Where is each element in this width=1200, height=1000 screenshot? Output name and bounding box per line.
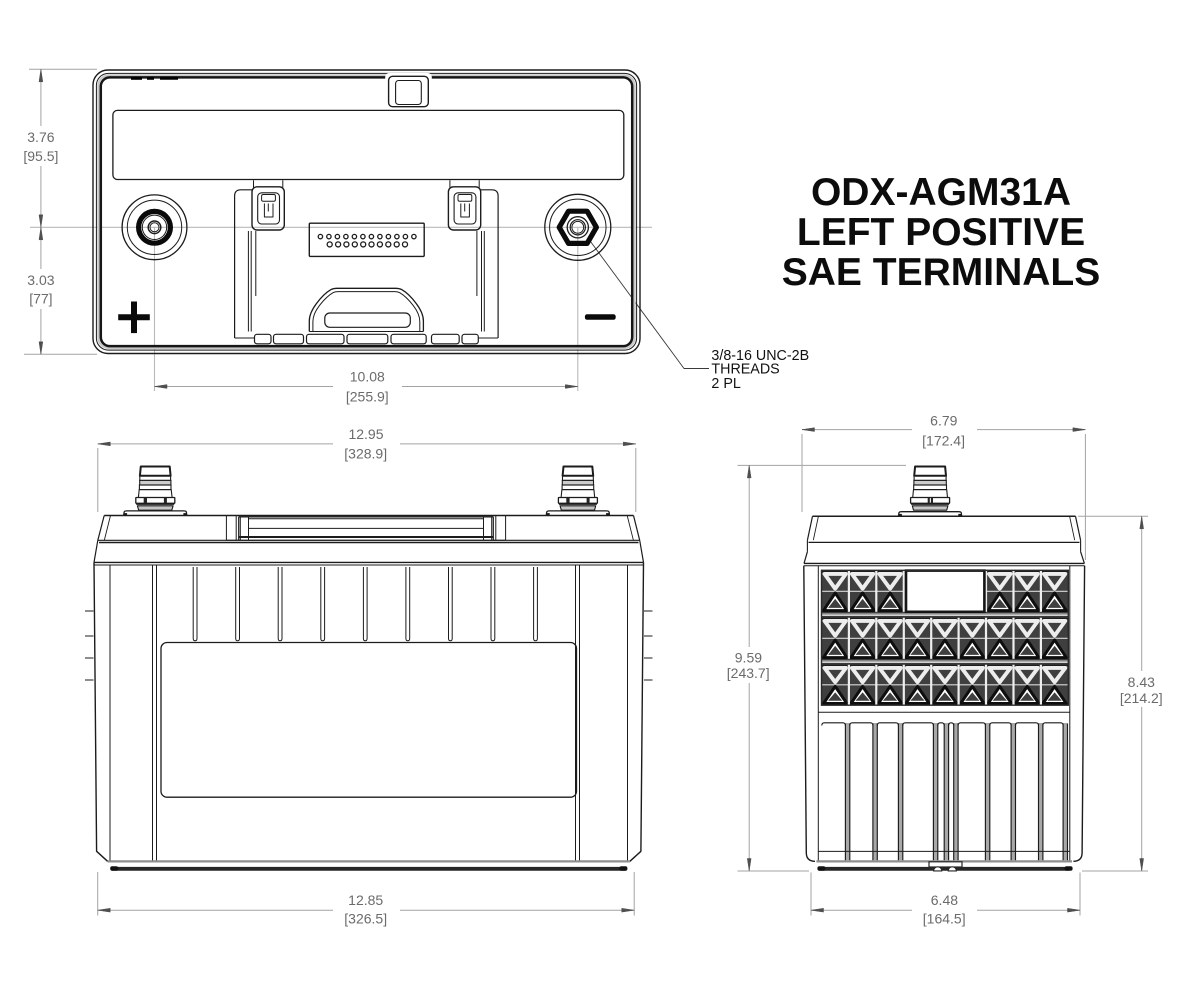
svg-text:3.76: 3.76: [27, 129, 54, 145]
svg-text:6.79: 6.79: [930, 413, 957, 429]
svg-text:12.85: 12.85: [348, 892, 383, 908]
svg-text:10.08: 10.08: [350, 369, 385, 385]
svg-text:[172.4]: [172.4]: [922, 432, 965, 448]
svg-text:[77]: [77]: [29, 291, 52, 307]
svg-text:[326.5]: [326.5]: [344, 911, 387, 927]
svg-text:LEFT POSITIVE: LEFT POSITIVE: [797, 211, 1085, 254]
svg-text:[164.5]: [164.5]: [923, 911, 966, 927]
svg-text:SAE TERMINALS: SAE TERMINALS: [782, 251, 1101, 294]
svg-text:ODX-AGM31A: ODX-AGM31A: [811, 171, 1071, 214]
svg-text:[255.9]: [255.9]: [346, 389, 389, 405]
svg-text:2 PL: 2 PL: [711, 376, 740, 392]
svg-text:8.43: 8.43: [1128, 674, 1155, 690]
svg-text:9.59: 9.59: [735, 650, 762, 666]
svg-text:6.48: 6.48: [931, 892, 958, 908]
svg-text:[95.5]: [95.5]: [23, 148, 58, 164]
svg-text:3.03: 3.03: [27, 272, 54, 288]
svg-text:12.95: 12.95: [348, 426, 383, 442]
svg-text:[214.2]: [214.2]: [1120, 690, 1163, 706]
svg-text:[243.7]: [243.7]: [727, 665, 770, 681]
svg-text:[328.9]: [328.9]: [344, 445, 387, 461]
